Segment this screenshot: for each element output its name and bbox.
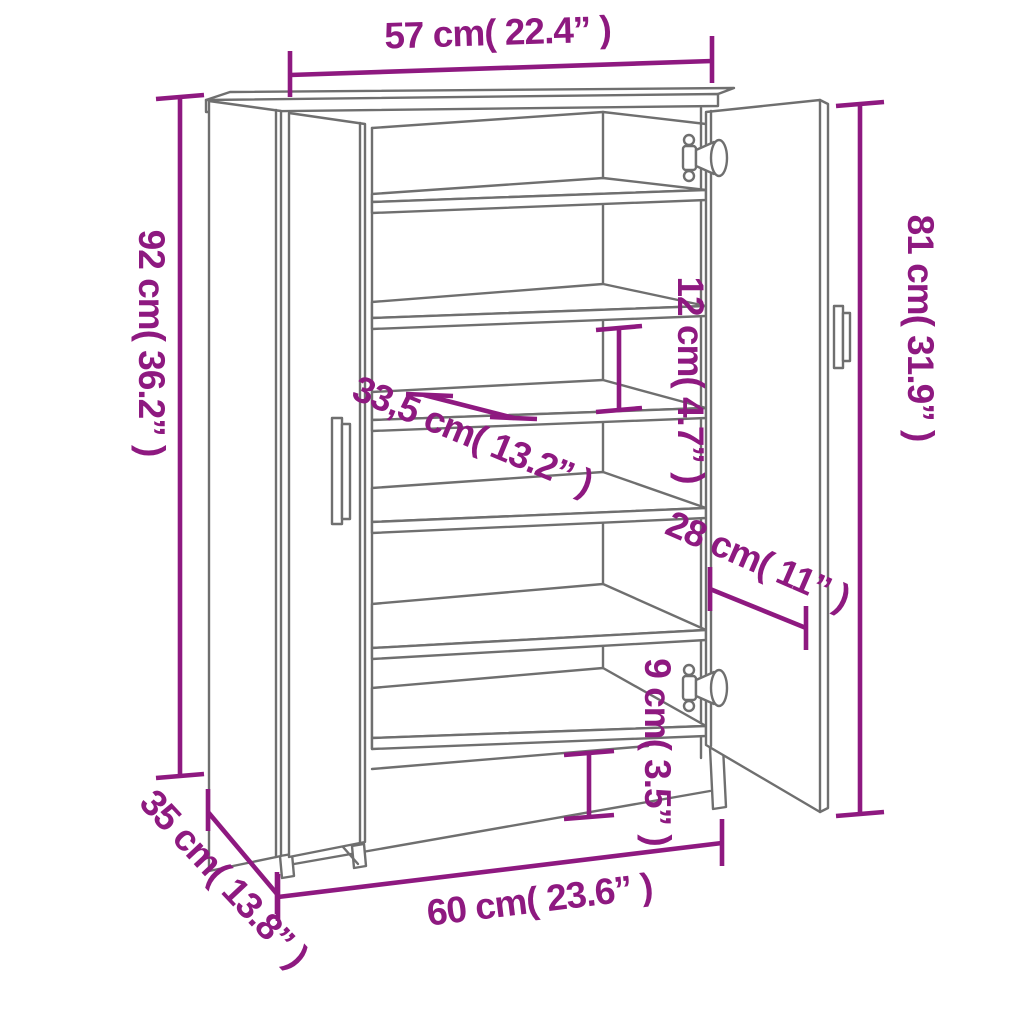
right-door-handle [834, 306, 850, 368]
handle-bar-icon [843, 313, 850, 361]
hinge-plate [683, 676, 696, 700]
hinge-screw [684, 701, 694, 711]
hinge-cup [711, 670, 727, 706]
handle-bar-icon [342, 424, 350, 519]
diagram-canvas: 57 cm( 22.4” ) 92 cm( 36.2” ) 81 cm( 31.… [0, 0, 1024, 1024]
dimension-line [290, 61, 712, 75]
hinge-cup [711, 140, 727, 176]
dimension-label: 81 cm( 31.9” ) [900, 215, 941, 442]
shelf-1 [372, 178, 706, 213]
handle-bar-icon [834, 306, 843, 368]
hinge-screw [684, 171, 694, 181]
dimension-label: 57 cm( 22.4” ) [384, 8, 612, 56]
handle-bar-icon [332, 418, 342, 524]
shoe-cabinet-dimension-diagram: 57 cm( 22.4” ) 92 cm( 36.2” ) 81 cm( 31.… [0, 0, 1024, 1024]
left-door-face [209, 101, 281, 871]
left-side-panel-face [289, 113, 365, 857]
cabinet-top-panel [206, 88, 734, 112]
left-door-handle [332, 418, 350, 524]
hinge-screw [684, 135, 694, 145]
dim-top-width: 57 cm( 22.4” ) [290, 8, 712, 97]
cabinet-drawing [206, 88, 850, 878]
dimension-label: 9 cm( 3.5” ) [637, 658, 678, 845]
left-door-panel [209, 101, 281, 871]
dim-right-height: 81 cm( 31.9” ) [836, 102, 941, 816]
dimension-label: 12 cm( 4.7” ) [670, 276, 711, 483]
left-side-panel [289, 113, 365, 864]
hinge-plate [683, 146, 696, 170]
shelf-2 [372, 284, 706, 329]
dimension-label: 92 cm( 36.2” ) [131, 230, 172, 457]
dim-left-height: 92 cm( 36.2” ) [131, 95, 204, 778]
top-panel-front-face [206, 94, 718, 112]
shelf-5 [372, 584, 706, 659]
interior-ceiling-line [372, 112, 706, 128]
hinge-screw [684, 665, 694, 675]
